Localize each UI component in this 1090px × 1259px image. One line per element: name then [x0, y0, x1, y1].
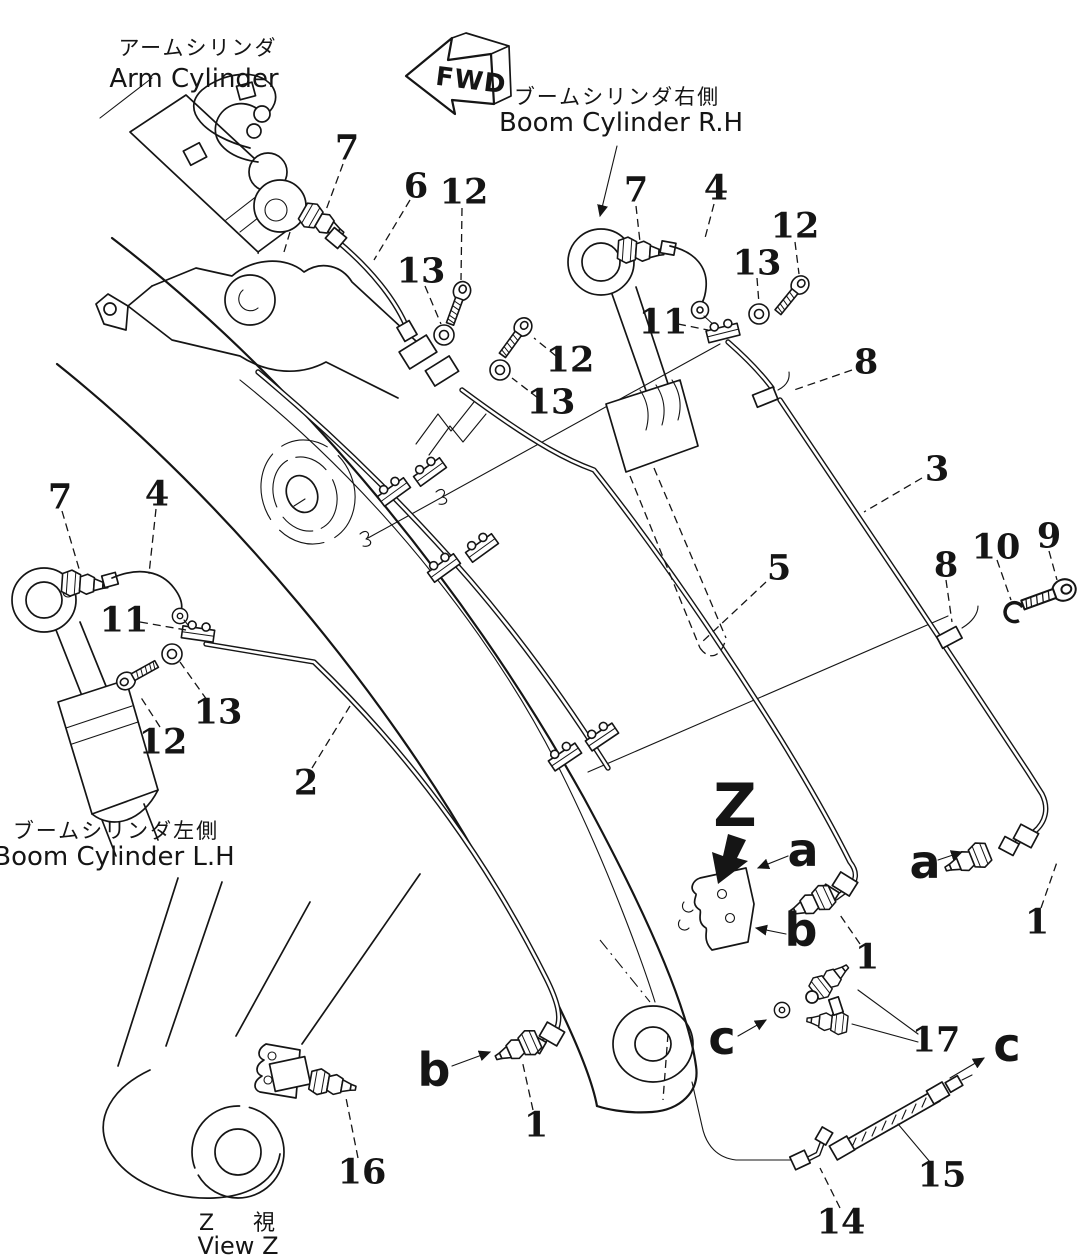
banjo-c [774, 1002, 789, 1017]
part-number-label: 7 [48, 477, 72, 518]
part-number-label: 11 [100, 600, 149, 641]
view-marker-label: a [787, 823, 818, 877]
part-number-label: 1 [1025, 902, 1049, 943]
part-number-label: 3 [925, 449, 949, 490]
part-number-label: 13 [397, 251, 446, 292]
part-number-label: 9 [1037, 516, 1061, 557]
part-number-label: 4 [145, 474, 169, 515]
bolt-9 [1019, 576, 1079, 615]
fitting-16 [308, 1067, 358, 1101]
part-number-label: 15 [918, 1155, 967, 1196]
washer-13-rh [749, 304, 769, 324]
part-number-label: 6 [404, 166, 428, 207]
hose-4-banjo-rh [692, 302, 709, 319]
part-number-label: 16 [338, 1152, 387, 1193]
bolt-12-lh [114, 657, 161, 693]
washer-13 [490, 360, 510, 380]
fitting-1-right [941, 840, 993, 881]
caption-boom-cylinder-lh-en: Boom Cylinder L.H [0, 842, 235, 872]
fitting-7-lh [61, 569, 109, 598]
mid-flange-assembly [399, 279, 535, 386]
part-number-label: 7 [624, 170, 648, 211]
caption-view-z-en: View Z [197, 1232, 278, 1259]
part-number-label: 10 [972, 527, 1021, 568]
part-number-label: 13 [527, 382, 576, 423]
part-number-label: 12 [771, 206, 820, 247]
fitting-7-rh [617, 236, 665, 265]
part-number-label: 12 [546, 340, 595, 381]
clamp-group [374, 473, 410, 506]
part-number-label: 5 [767, 548, 791, 589]
view-marker-label: b [785, 903, 818, 957]
part-number-label: 8 [934, 545, 958, 586]
bolt-12 [442, 279, 473, 327]
right-small-parts [937, 576, 1079, 648]
part-number-label: 7 [335, 128, 359, 169]
part-number-label: 1 [855, 937, 879, 978]
caption-arm-cylinder-jp: アームシリンダ [118, 32, 277, 62]
caption-boom-cylinder-rh-jp: ブームシリンダ右側 [514, 81, 720, 111]
part-number-label: 13 [733, 243, 782, 284]
snap-ring-10 [1003, 601, 1023, 623]
part-number-label: 2 [294, 763, 318, 804]
view-marker-label: b [418, 1043, 451, 1097]
fitting-1-bottom [491, 1027, 544, 1069]
part-number-label: 8 [854, 342, 878, 383]
washer-13-lh [162, 644, 182, 664]
view-marker-label: Z [713, 771, 757, 841]
part-number-label: 11 [639, 302, 688, 343]
view-marker-label: c [993, 1018, 1020, 1072]
part-number-label: 13 [194, 692, 243, 733]
parts-diagram-page: FWD アームシリンダ Arm Cylinder ブームシリンダ右側 Boom … [0, 0, 1090, 1259]
caption-boom-cylinder-rh-en: Boom Cylinder R.H [499, 108, 743, 138]
part-number-label: 4 [704, 168, 728, 209]
view-z-detail [103, 874, 420, 1198]
caption-boom-cylinder-lh-jp: ブームシリンダ左側 [13, 815, 219, 845]
fwd-label: FWD [434, 62, 508, 100]
caption-arm-cylinder-en: Arm Cylinder [109, 64, 278, 94]
view-marker-label: a [909, 835, 940, 889]
part-number-label: 12 [440, 172, 489, 213]
part-number-label: 17 [912, 1020, 961, 1061]
part-number-label: 12 [139, 722, 188, 763]
part-number-label: 1 [524, 1105, 548, 1146]
part-number-label: 14 [817, 1202, 866, 1243]
boom-piping [206, 372, 1046, 1070]
washer-13 [434, 325, 454, 345]
view-marker-label: c [708, 1011, 735, 1065]
bolt-12 [496, 314, 536, 360]
fwd-arrow: FWD [406, 33, 511, 114]
diagram-canvas: FWD [0, 0, 1090, 1259]
